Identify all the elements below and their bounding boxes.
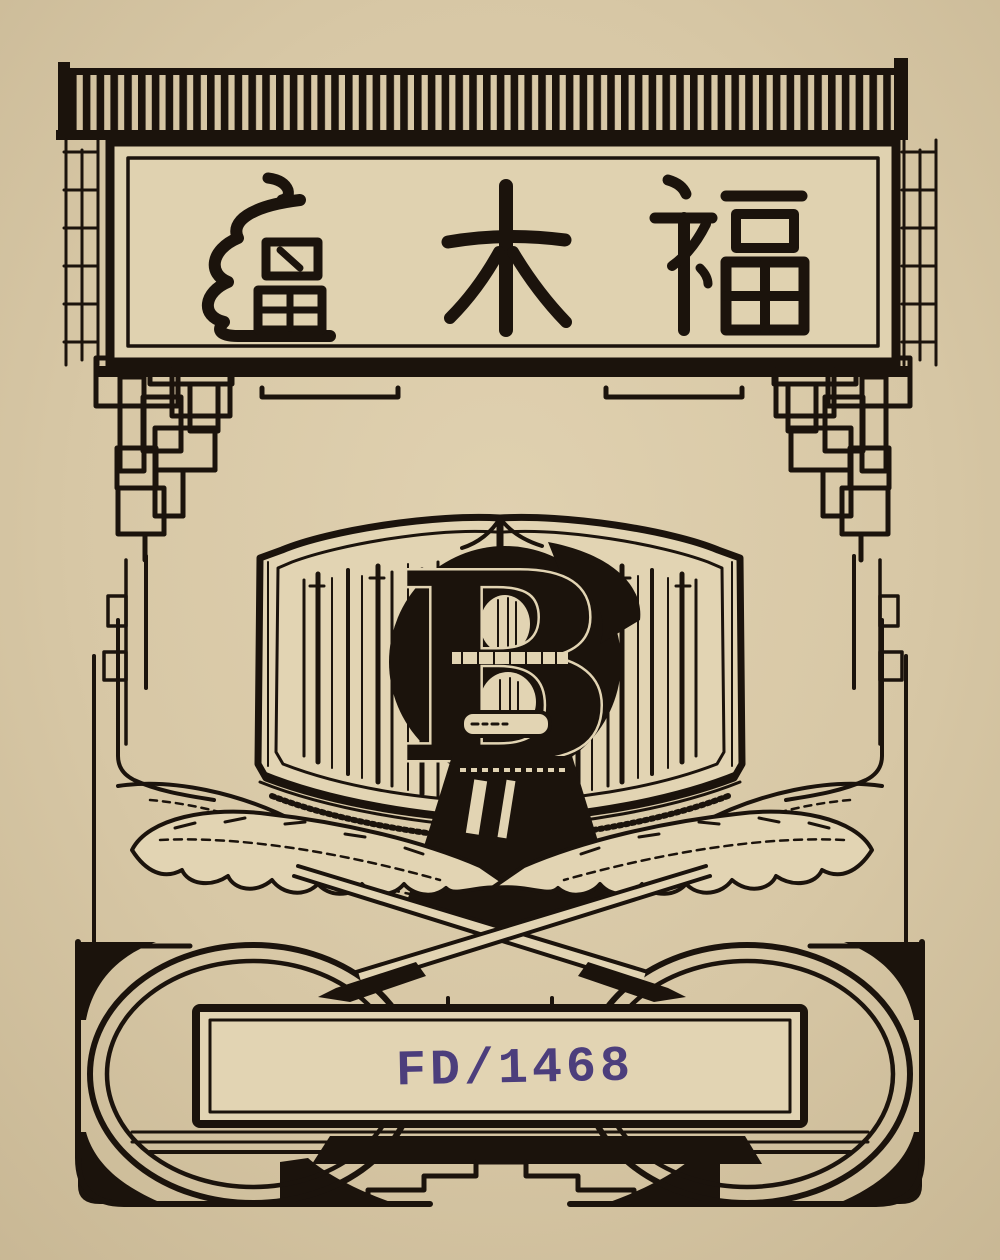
striped-cornice-icon xyxy=(56,58,908,140)
monogram-mini-label xyxy=(462,712,550,736)
pedestal-bar xyxy=(312,1136,762,1164)
shelfmark-banner: FD/1468 xyxy=(196,1008,804,1124)
bookplate-page: B FD/1468 xyxy=(0,0,1000,1260)
shelfmark-stamp-text: FD/1468 xyxy=(395,1039,634,1101)
title-banner xyxy=(110,142,896,362)
monogram-middle-band xyxy=(452,652,568,664)
bookplate-artwork: B FD/1468 xyxy=(0,0,1000,1260)
